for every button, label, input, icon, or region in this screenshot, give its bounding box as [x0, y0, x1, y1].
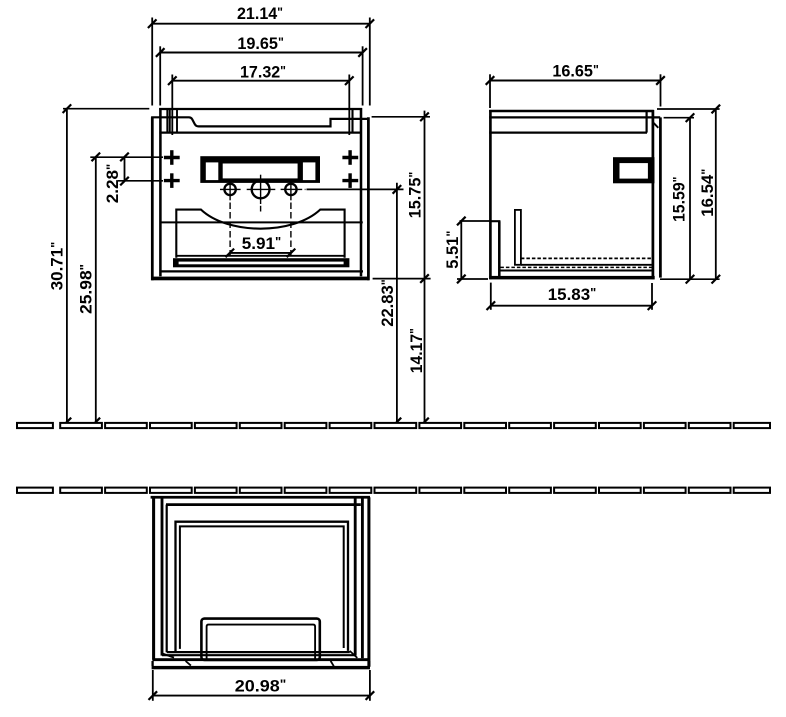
svg-text:25.98": 25.98" [77, 264, 96, 314]
svg-text:15.59": 15.59" [670, 177, 689, 223]
svg-text:15.75": 15.75" [406, 172, 425, 219]
svg-text:16.65": 16.65" [552, 61, 599, 80]
svg-text:15.83": 15.83" [548, 285, 597, 304]
svg-text:14.17": 14.17" [407, 328, 426, 373]
svg-text:22.83": 22.83" [378, 279, 397, 327]
svg-text:20.98": 20.98" [235, 676, 287, 695]
svg-text:19.65": 19.65" [237, 34, 284, 53]
svg-text:17.32": 17.32" [240, 62, 286, 81]
svg-text:21.14": 21.14" [237, 4, 283, 23]
svg-text:30.71": 30.71" [48, 242, 67, 291]
svg-text:16.54": 16.54" [698, 169, 717, 217]
